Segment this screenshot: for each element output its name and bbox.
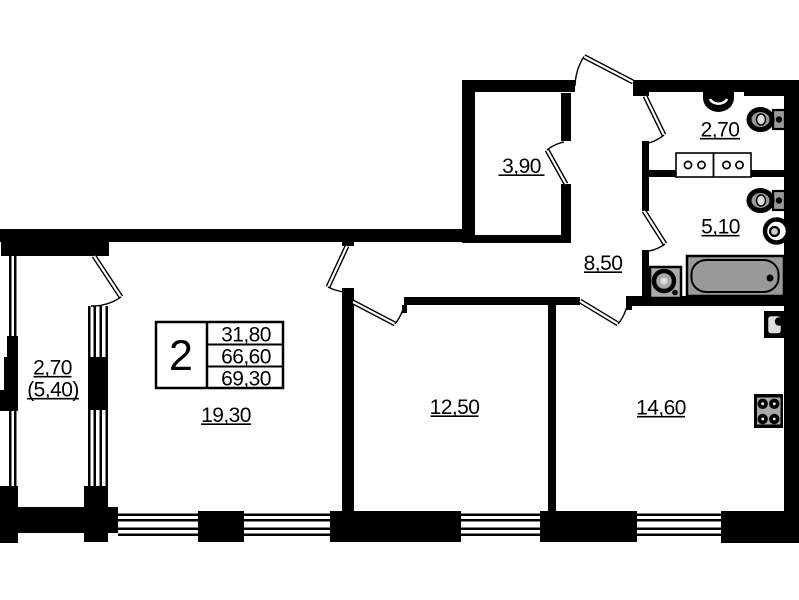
svg-text:2: 2 <box>169 332 193 380</box>
svg-text:69,30: 69,30 <box>221 368 271 391</box>
svg-text:31,80: 31,80 <box>221 324 271 347</box>
svg-text:66,60: 66,60 <box>221 346 271 369</box>
